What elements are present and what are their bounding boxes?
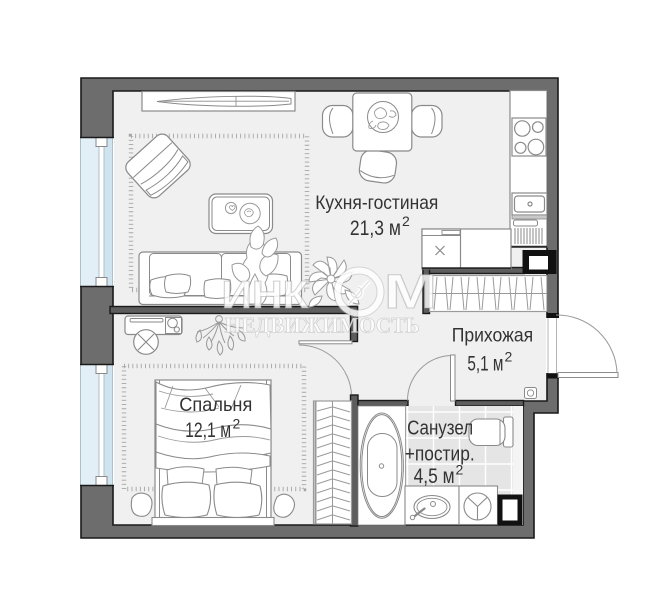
- svg-text:2: 2: [505, 349, 513, 365]
- svg-text:НЕДВИЖИМОСТЬ: НЕДВИЖИМОСТЬ: [225, 313, 420, 338]
- svg-text:Спальня: Спальня: [179, 394, 252, 416]
- svg-text:Санузел: Санузел: [407, 417, 473, 439]
- svg-text:М: М: [384, 265, 437, 319]
- svg-text:2: 2: [456, 462, 464, 478]
- svg-text:Прихожая: Прихожая: [452, 325, 534, 347]
- svg-text:5,1 м: 5,1 м: [467, 351, 503, 375]
- svg-text:21,3 м: 21,3 м: [350, 216, 401, 240]
- svg-text:Кухня-гостиная: Кухня-гостиная: [315, 193, 438, 214]
- svg-text:4,5 м: 4,5 м: [414, 464, 455, 488]
- svg-text:+постир.: +постир.: [405, 443, 475, 465]
- svg-text:2: 2: [233, 416, 241, 432]
- svg-text:2: 2: [402, 213, 410, 229]
- svg-text:12,1 м: 12,1 м: [185, 418, 231, 442]
- svg-text:ИНК: ИНК: [222, 274, 309, 317]
